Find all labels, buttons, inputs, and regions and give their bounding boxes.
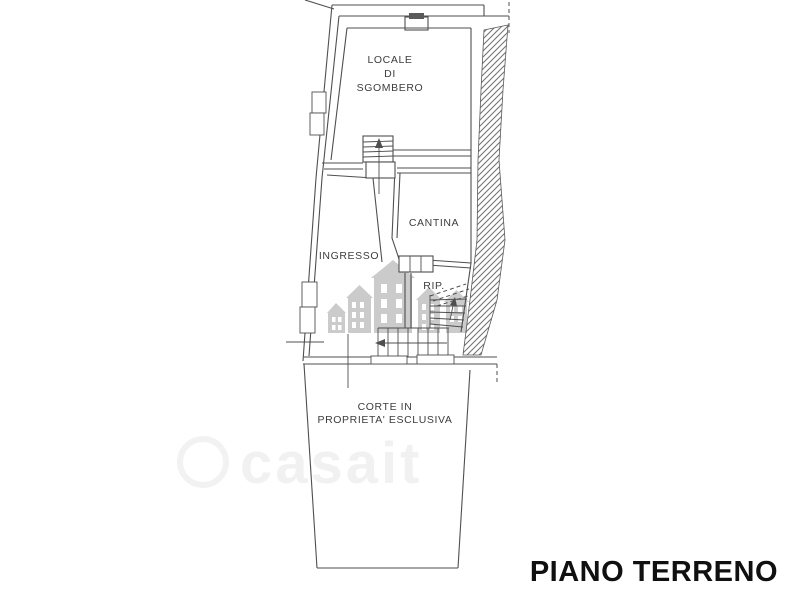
window-opening — [300, 307, 315, 333]
window-opening — [310, 113, 324, 135]
watermark-house-medium-roof — [346, 285, 373, 298]
sgombero-left-inner — [331, 28, 347, 160]
watermark-window — [332, 325, 336, 330]
watermark-window — [396, 299, 402, 308]
watermark-window — [360, 322, 364, 328]
watermark-window — [352, 312, 356, 318]
locale-di-sgombero-label-line1: LOCALE — [367, 54, 412, 66]
room-labels: LOCALE DI SGOMBERO CANTINA INGRESSO RIP.… — [318, 54, 460, 426]
stair-landing — [366, 162, 395, 178]
door-threshold — [371, 356, 407, 364]
watermark-window — [396, 284, 402, 293]
right-wall-inner — [461, 28, 471, 332]
locale-di-sgombero-label-line2: DI — [384, 68, 396, 80]
watermark-window — [430, 304, 434, 310]
bottom-wall-openings — [371, 355, 454, 364]
watermark-window — [360, 302, 364, 308]
cantina-left-wall-b — [397, 173, 400, 238]
watermark-window — [332, 317, 336, 322]
stair-flight — [363, 136, 393, 162]
watermark-window — [338, 317, 342, 322]
watermark-window — [422, 324, 426, 330]
floor-title: PIANO TERRENO — [530, 556, 778, 588]
hatched-adjacent-wall — [463, 2, 509, 383]
staircase-small — [399, 256, 433, 272]
hatch-strip — [463, 25, 508, 355]
courtyard-right-line — [458, 370, 470, 568]
small-stair-box — [399, 256, 433, 272]
travel-arrow-left-icon — [375, 339, 385, 347]
watermark-window — [430, 324, 434, 330]
watermark-window — [422, 304, 426, 310]
watermark-house-tall — [374, 277, 412, 333]
watermark-window — [422, 314, 426, 320]
watermark-window — [381, 299, 387, 308]
corte-label-line2: PROPRIETA' ESCLUSIVA — [318, 414, 453, 426]
watermark-circle-icon — [180, 439, 226, 485]
ingresso-label: INGRESSO — [319, 250, 379, 262]
staircase-upper — [363, 136, 395, 194]
floorplan-drawing: casait — [0, 0, 786, 600]
watermark-window — [352, 322, 356, 328]
window-opening — [302, 282, 317, 307]
watermark-window — [360, 312, 364, 318]
top-left-annotation-line — [305, 0, 334, 9]
watermark-window — [458, 306, 462, 312]
watermark-window — [338, 325, 342, 330]
door-threshold — [417, 355, 454, 364]
watermark-window — [430, 314, 434, 320]
watermark-house-small-roof — [327, 303, 346, 313]
corte-label-line1: CORTE IN — [358, 401, 413, 413]
watermark-window — [396, 314, 402, 323]
chimney-cap — [409, 13, 424, 19]
watermark-house-medium — [348, 297, 371, 333]
locale-di-sgombero-label-line3: SGOMBERO — [357, 82, 424, 94]
watermark-window — [381, 284, 387, 293]
cantina-label: CANTINA — [409, 217, 459, 229]
window-opening — [312, 92, 326, 113]
watermark-window — [352, 302, 356, 308]
watermark-window — [381, 314, 387, 323]
watermark-window — [458, 316, 462, 322]
rip-label: RIP. — [423, 280, 444, 292]
watermark-text: casait — [240, 431, 422, 496]
casa-it-watermark: casait — [180, 431, 422, 496]
floorplan-image: casait — [0, 0, 786, 600]
